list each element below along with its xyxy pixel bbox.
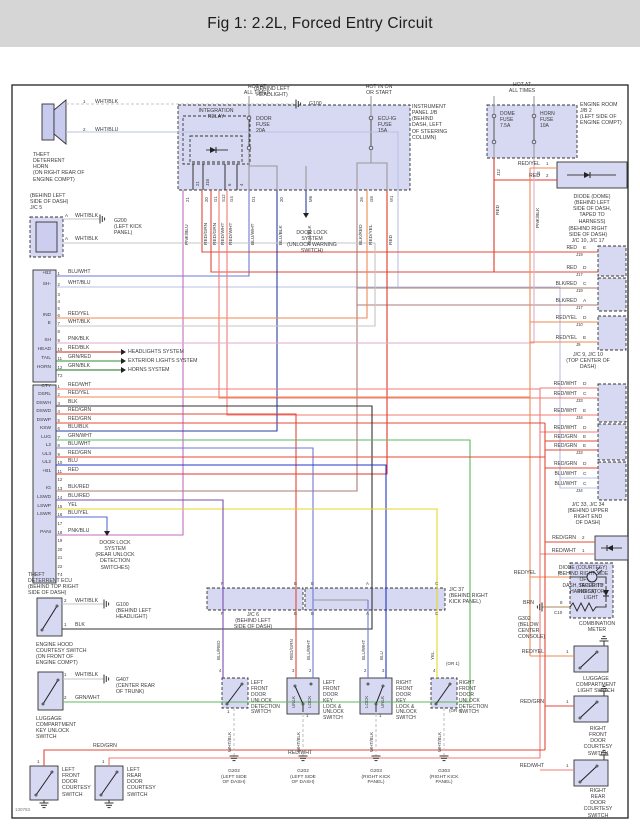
label-ecu1-num-11: 12	[58, 365, 63, 370]
label-ecu1-num-9: 10	[58, 347, 63, 352]
label-jc3334-wire-1: RED/WHT	[554, 392, 577, 398]
label-ecu2-name-8: UL3	[42, 452, 51, 458]
label-ecu2-num-2: 3	[58, 401, 60, 406]
label-horn_sys: HORNS SYSTEM	[128, 367, 170, 373]
label-ecu1-num-2: 3	[58, 292, 60, 297]
label-dc_p1: 2	[582, 535, 585, 540]
label-mid-pin-4: 3	[382, 668, 384, 673]
label-ext_sys: EXTERIOR LIGHTS SYSTEM	[128, 358, 197, 364]
label-jc3334-pin-8: C	[583, 482, 586, 488]
label-mid-pin-1: 3	[292, 668, 294, 673]
label-jc1017-tag-1: J17	[576, 273, 583, 278]
label-jc-bot-10: B	[311, 611, 314, 616]
label-relay-pin-2: 6	[227, 184, 232, 186]
label-lugk_p2: 2	[64, 695, 67, 700]
label-mid-pin-2: 2	[309, 668, 311, 673]
label-ecu2-num-9: 10	[58, 460, 63, 465]
label-jb-exit-pin-7: M6	[308, 196, 313, 202]
label-ecu2-num-17: 18	[58, 530, 63, 535]
label-jb-exit-wire-8: BLK/RED	[359, 224, 365, 245]
label-brs_label: (BEHIND RIGHT SIDE OF DASH) J/C 10, J/C …	[569, 226, 608, 244]
label-hl_sys: HEADLIGHTS SYSTEM	[128, 349, 184, 355]
label-ecu1-wire-6: WHT/BLK	[68, 320, 90, 326]
label-lls_w: RED/YEL	[522, 649, 544, 655]
label-jc1017-wire-2: BLK/RED	[556, 282, 577, 288]
label-ecu2-name-2: DSWH	[36, 401, 51, 407]
label-jc3334-pin-0: D	[583, 382, 586, 388]
label-ecu2-wire-15: BLU/YEL	[68, 511, 89, 517]
label-ecu1-wire-5: RED/YEL	[68, 312, 89, 318]
label-ecu2-name-10: +B1	[42, 469, 51, 475]
label-jc3334-tag-8: J34	[576, 489, 583, 494]
label-g303_lbl: G303 (RIGHT KICK PANEL)	[430, 769, 459, 786]
label-lock1: LOCK	[307, 696, 312, 708]
label-jc-top-01: B	[294, 581, 297, 586]
label-comb_meter: COMBINATION METER	[579, 621, 615, 633]
label-jb-exit-pin-2: G1	[213, 196, 218, 202]
label-jb-exit-pin-0: 21	[185, 197, 190, 202]
label-jb-exit-wire-0: PNK/BLU	[185, 224, 191, 245]
label-g202b_lbl: G202 (LEFT SIDE OF DASH)	[290, 769, 316, 786]
label-jc5_w1: WHT/BLK	[75, 213, 98, 219]
label-sl_w: RED/YEL	[514, 570, 536, 576]
label-ecu1-wire-0: BLU/WHT	[68, 270, 91, 276]
label-dome_fuse: DOME FUSE 7.5A	[500, 112, 515, 130]
label-jc3334_lbl: J/C 33, J/C 34 (BEHIND UPPER RIGHT END O…	[568, 502, 609, 527]
label-door_fuse: DOOR FUSE 20A	[256, 116, 272, 134]
label-jc3334-wire-0: RED/WHT	[554, 382, 577, 388]
label-lugk_lbl: LUGGAGE COMPARTMENT KEY UNLOCK SWITCH	[36, 716, 76, 741]
label-er-exit-wire-0: RED	[496, 205, 502, 215]
label-jc-bot-12: C	[435, 611, 438, 616]
label-dd_p2: 2	[546, 173, 549, 178]
label-key2_p: 1	[379, 713, 382, 718]
label-ecu2-num-12: 13	[58, 486, 63, 491]
label-ecu1-num-7: 8	[58, 329, 60, 334]
label-dd_p1: 1	[546, 161, 549, 166]
label-ecu1-num-0: 1	[58, 271, 60, 276]
label-jc-bot-11: A	[366, 611, 369, 616]
label-mid-wire-4: BLU	[379, 651, 384, 660]
label-ecu2-wire-1: RED/YEL	[68, 391, 89, 397]
label-lugk_w2: GRN/WHT	[75, 695, 100, 701]
label-brn_w: BRN	[523, 600, 534, 606]
label-or1: (OR 1)	[446, 661, 460, 666]
label-dd_w1: RED/YEL	[518, 161, 540, 167]
label-relay-pin-0: 21	[195, 181, 200, 186]
label-w_horn2: WHT/BLU	[95, 127, 118, 133]
label-hood_p1: 1	[64, 622, 67, 627]
label-jc3334-wire-6: RED/GRN	[554, 462, 577, 468]
label-ecu2-name-7: L2	[46, 443, 51, 449]
label-jc1017-wire-1: RED	[566, 266, 577, 272]
label-hot_door: HOT AT ALL TIMES	[244, 84, 270, 96]
label-jc5_lbl: (BEHIND LEFT SIDE OF DASH) J/C 5	[30, 193, 68, 211]
label-ecu2-num-1: 2	[58, 392, 60, 397]
label-ecu2-name-9: UL2	[42, 460, 51, 466]
label-mid-wire-0: BLU/RED	[216, 640, 221, 660]
label-key1_p: 1	[306, 713, 309, 718]
label-jc3334-wire-5: RED/GRN	[554, 444, 577, 450]
label-jc-bot-00: F	[221, 611, 224, 616]
label-ecu2-name-0: CTY	[41, 384, 51, 390]
label-ecu1-num-4: 5	[58, 306, 60, 311]
label-jc3334-wire-7: BLU/WHT	[555, 472, 578, 478]
label-g200_lbl: G200 (LEFT KICK PANEL)	[114, 218, 142, 236]
label-jc910-pin-0: D	[583, 316, 586, 322]
label-ecu1-num-3: 4	[58, 299, 60, 304]
label-jc5_p2: A	[65, 236, 68, 241]
label-jc1017-pin-2: C	[583, 282, 586, 288]
label-ecu2-num-22: T4	[58, 572, 63, 577]
label-jc910-tag-0: J10	[576, 323, 583, 328]
label-ecu2-wire-6: GRN/WHT	[68, 434, 92, 440]
label-rrc_lbl: RIGHT REAR DOOR COURTESY SWITCH	[584, 788, 613, 819]
label-ecu2-num-16: 17	[58, 521, 63, 526]
label-jb-exit-pin-9: G8	[369, 196, 374, 202]
label-ecu2-num-19: 20	[58, 547, 63, 552]
label-g100b_lbl: G100 (BEHIND LEFT HEADLIGHT)	[116, 602, 151, 620]
label-jb-exit-wire-7: BLU/BLK	[308, 225, 314, 245]
label-ecu2-name-4: DSWP	[37, 418, 51, 424]
label-ecu2-wire-14: YEL	[68, 503, 77, 509]
label-ecu2-wire-10: RED	[68, 468, 79, 474]
label-ip_jb: INSTRUMENT PANEL J/B (BEHIND DASH, LEFT …	[412, 104, 447, 141]
label-ecu2-name-3: DSWD	[36, 409, 51, 415]
label-jc3334-pin-3: D	[583, 426, 586, 432]
label-er-exit-pin-0: J12	[496, 169, 501, 176]
label-jb-exit-wire-9: RED/YEL	[369, 224, 375, 245]
label-horn_p1: 1	[83, 99, 86, 104]
label-sl_p: 9	[558, 570, 561, 575]
label-g203_lbl: G203 (RIGHT KICK PANEL)	[362, 769, 391, 786]
label-ecu1-wire-1: WHT/BLU	[68, 281, 91, 287]
label-ecu1-name-8: SH	[44, 338, 51, 344]
label-ecuig_fuse: ECU-IG FUSE 15A	[378, 116, 396, 134]
label-jc3334-tag-1: J33	[576, 399, 583, 404]
label-relay-pin-1: J18	[205, 179, 210, 186]
label-jc910-wire-0: RED/YEL	[556, 316, 577, 322]
label-jc-top-10: B	[311, 581, 314, 586]
label-jc3334-pin-7: C	[583, 472, 586, 478]
label-ecu1-num-8: 9	[58, 338, 60, 343]
label-horn_p2: 2	[83, 127, 86, 132]
label-key1_lbl: LEFT FRONT DOOR KEY LOCK & UNLOCK SWITCH	[323, 681, 344, 722]
label-jc910-wire-1: RED/YEL	[556, 336, 577, 342]
label-jc1017-tag-3: J17	[576, 306, 583, 311]
label-mid-wire-1: RED/GRN	[289, 639, 294, 660]
label-ecu2-num-10: 11	[58, 469, 62, 474]
label-jc1017-tag-2: J19	[576, 289, 583, 294]
label-jc-bot-01: B	[294, 611, 297, 616]
label-ecu2-name-13: LSWD	[37, 495, 51, 501]
label-jc1017-pin-3: A	[583, 299, 586, 305]
label-jc3334-pin-6: D	[583, 462, 586, 468]
label-ecu1-name-10: TAIL	[41, 356, 51, 362]
label-rg_b: RED/GRN	[93, 743, 117, 749]
label-mid-pin-5: 4	[433, 668, 435, 673]
label-ecu2-num-15: 16	[58, 512, 63, 517]
label-det1_p: 1	[227, 709, 230, 714]
label-ecu1-wire-9: RED/BLK	[68, 346, 89, 352]
label-jc3334-tag-5: J33	[576, 451, 583, 456]
label-jb-exit-wire-2: RED/GRN	[213, 223, 219, 245]
label-ecu2-num-14: 15	[58, 504, 63, 509]
label-jc3334-wire-8: BLU/WHT	[555, 482, 578, 488]
label-jc1017-tag-0: J19	[576, 253, 583, 258]
label-rfc_p: 1	[566, 699, 569, 704]
label-w_horn1: WHT/BLK	[95, 99, 118, 105]
label-jc910-tag-1: J9	[576, 343, 580, 348]
label-lls_lbl: LUGGAGE COMPARTMENT LIGHT SWITCH	[576, 676, 616, 694]
label-ecu2-num-0: 1	[58, 384, 60, 389]
label-det1_lbl: LEFT FRONT DOOR UNLOCK DETECTION SWITCH	[251, 681, 280, 716]
label-ecu2-wire-9: BLU	[68, 459, 78, 465]
label-ecu2-name-15: LSWR	[37, 512, 51, 518]
label-ecu2-wire-7: BLU/WHT	[68, 442, 91, 448]
label-jb-exit-wire-6: BLU/BLK	[279, 225, 285, 245]
label-ecu2-num-5: 6	[58, 426, 60, 431]
label-rfc_w: RED/GRN	[520, 699, 544, 705]
label-jc3334-pin-5: E	[583, 444, 586, 450]
label-dc_w2: RED/WHT	[552, 548, 576, 554]
label-hot_dome: HOT AT ALL TIMES	[509, 82, 535, 94]
label-integ_relay: INTEGRATION RELAY	[198, 108, 233, 120]
label-ecu2-num-21: 22	[58, 564, 63, 569]
label-t_horn: THEFT DETERRENT HORN (ON RIGHT REAR OF E…	[33, 152, 85, 183]
label-ecu1-name-6: E	[48, 321, 51, 327]
label-hood_w1: BLK	[75, 622, 85, 628]
label-ecu2-num-6: 7	[58, 435, 60, 440]
label-g302_lbl: G302 (BELOW CENTER CONSOLE)	[518, 616, 545, 641]
label-unlk2: UNLK	[380, 696, 385, 708]
label-er-exit-wire-1: PNK/BLK	[536, 208, 542, 228]
label-jb-exit-pin-5: D1	[251, 197, 256, 203]
label-ecu1-name-5: IND	[43, 313, 51, 319]
label-key2_lbl: RIGHT FRONT DOOR KEY LOCK & UNLOCK SWITC…	[396, 681, 417, 722]
label-jc1017-pin-0: E	[583, 246, 586, 252]
label-unlk1: UNLK	[291, 696, 296, 708]
label-ecu2-num-18: 19	[58, 538, 63, 543]
label-horn_fuse: HORN FUSE 10A	[540, 112, 555, 130]
label-ecu2-name-1: DSRL	[38, 392, 51, 398]
label-sec_light: SECURITY INDICATOR LIGHT	[577, 584, 604, 602]
label-ecu2-name-14: LSWP	[37, 504, 51, 510]
label-lfc_lbl: LEFT FRONT DOOR COURTESY SWITCH	[62, 767, 91, 798]
label-jb-exit-wire-10: RED	[389, 235, 395, 245]
label-ecu2-num-11: 12	[58, 477, 63, 482]
label-ecu2-num-8: 9	[58, 452, 60, 457]
label-whtblk-1: WHT/BLK	[296, 732, 301, 752]
label-jc5_p1: A	[65, 213, 68, 218]
label-ecu2-wire-5: BLU/BLK	[68, 425, 89, 431]
label-whtblk-0: WHT/BLK	[227, 732, 232, 752]
label-ecu1-num-1: 2	[58, 282, 60, 287]
label-jc-top-00: F	[221, 581, 224, 586]
label-det2_lbl: RIGHT FRONT DOOR UNLOCK DETECTION SWITCH	[459, 681, 488, 716]
label-ecu2-wire-13: BLU/RED	[68, 494, 90, 500]
label-c10: C10	[554, 610, 562, 615]
label-ecu1-num-10: 11	[58, 356, 62, 361]
label-jb-exit-pin-1: 20	[204, 197, 209, 202]
wiring-diagram-page: Fig 1: 2.2L, Forced Entry Circuit THEFT …	[0, 0, 640, 835]
label-jc1017-wire-3: BLK/RED	[556, 299, 577, 305]
label-ecu2-num-4: 5	[58, 418, 60, 423]
label-jc-top-12: C	[435, 581, 438, 586]
label-dc_w1: RED/GRN	[552, 535, 576, 541]
label-rrc_w: RED/WHT	[520, 763, 544, 769]
label-ecu1-name-0: +B2	[42, 271, 51, 277]
label-jc6_lbl: J/C 6 (BEHIND LEFT SIDE OF DASH)	[234, 612, 272, 630]
label-g100a: G100	[309, 101, 322, 107]
label-er_jb: ENGINE ROOM J/B 2 (LEFT SIDE OF ENGINE C…	[580, 102, 622, 127]
label-jb-exit-pin-3: S12	[221, 194, 226, 202]
label-ecu2-num-20: 21	[58, 555, 63, 560]
label-jb-exit-pin-4: G4	[229, 196, 234, 202]
label-jb-exit-wire-5: BLU/WHT	[251, 223, 257, 245]
diagram-code: 130793	[15, 807, 30, 812]
label-ecu1-num-5: 6	[58, 313, 60, 318]
label-jb-exit-pin-6: 20	[279, 197, 284, 202]
label-ecu1-num-6: 7	[58, 321, 60, 326]
label-ecu2-wire-2: BLK	[68, 400, 77, 406]
label-g407_lbl: G407 (CENTER REAR OF TRUNK)	[116, 677, 155, 695]
label-hood_w2: WHT/BLK	[75, 598, 98, 604]
label-lock2: LOCK	[364, 696, 369, 708]
label-jc3334-tag-2: J34	[576, 416, 583, 421]
label-ecu1-num-12: T2	[58, 373, 63, 378]
label-dc_p2: 1	[582, 548, 585, 553]
label-hot_ecuig: HOT IN ON OR START	[366, 84, 393, 96]
label-ecu2-wire-4: RED/GRN	[68, 417, 91, 423]
label-dls2: DOOR LOCK SYSTEM (REAR UNLOCK DETECTION …	[95, 540, 134, 571]
label-lrc_lbl: LEFT REAR DOOR COURTESY SWITCH	[127, 767, 156, 798]
label-ecu2-num-13: 14	[58, 495, 63, 500]
label-jc3334-pin-1: C	[583, 392, 586, 398]
label-rfc_lbl: RIGHT FRONT DOOR COURTESY SWITCH	[584, 726, 613, 757]
label-ecu1-name-1: SH-	[43, 282, 51, 288]
label-ecu2-wire-12: BLK/RED	[68, 485, 89, 491]
label-jc3334-wire-2: RED/WHT	[554, 409, 577, 415]
label-ecu1-wire-10: GRN/RED	[68, 355, 91, 361]
label-mid-pin-3: 2	[364, 668, 366, 673]
label-jb-exit-wire-1: RED/GRN	[204, 223, 210, 245]
label-jc-top-11: A	[366, 581, 369, 586]
label-relay-pin-3: 4	[239, 184, 244, 186]
label-ecu2-wire-0: RED/WHT	[68, 383, 91, 389]
label-whtblk-2: WHT/BLK	[369, 732, 374, 752]
label-ecu2-name-6: LUG	[41, 435, 51, 441]
label-lrc_p: 1	[102, 759, 105, 764]
label-jb-exit-pin-8: 26	[359, 197, 364, 202]
label-ecu2-name-12: IG	[46, 486, 51, 492]
label-ecu_lbl: THEFT DETERRENT ECU (BEHIND TOP RIGHT SI…	[28, 572, 79, 597]
label-ecu1-name-9: HEAD	[38, 347, 51, 353]
label-ecu2-num-7: 8	[58, 443, 60, 448]
label-ecu2-wire-17: PNK/BLU	[68, 529, 89, 535]
label-ecu1-wire-11: GRN/BLK	[68, 364, 90, 370]
label-jb-exit-wire-3: RED/WHT	[221, 223, 227, 245]
label-jc3334-pin-2: E	[583, 409, 586, 415]
label-ecu2-name-5: KSW	[40, 426, 51, 432]
label-jc910_lbl: J/C 9, J/C 10 (TOP CENTER OF DASH)	[562, 352, 614, 370]
label-ecu2-name-17: PANI	[40, 530, 51, 536]
label-lugk_p1: 1	[64, 672, 67, 677]
label-jb-exit-pin-10: W1	[389, 196, 394, 202]
label-jc1017-pin-1: D	[583, 266, 586, 272]
label-ecu2-num-3: 4	[58, 409, 60, 414]
label-mid-wire-5: YEL	[430, 651, 435, 660]
label-jc1017-wire-0: RED	[566, 246, 577, 252]
label-lfc_p: 1	[37, 759, 40, 764]
label-whtblk-3: WHT/BLK	[437, 732, 442, 752]
label-hood_lbl: ENGINE HOOD COURTESY SWITCH (ON FRONT OF…	[36, 642, 87, 667]
label-jb-exit-wire-4: RED/WHT	[229, 223, 235, 245]
label-mid-wire-2: BLU/WHT	[306, 640, 311, 660]
label-rrc_p: 1	[566, 763, 569, 768]
label-jc3334-wire-4: RED/GRN	[554, 435, 577, 441]
label-jc910-pin-1: E	[583, 336, 586, 342]
label-diode_dome_lbl: DIODE (DOME) (BEHIND LEFT SIDE OF DASH, …	[573, 194, 611, 225]
label-jc5_w2: WHT/BLK	[75, 236, 98, 242]
label-brn_p: 8	[560, 600, 563, 605]
label-jc3334-pin-4: E	[583, 435, 586, 441]
label-g202a_lbl: G202 (LEFT SIDE OF DASH)	[221, 769, 247, 786]
label-ecu1-wire-8: PNK/BLK	[68, 337, 89, 343]
label-ecu1-name-11: HORN	[37, 365, 51, 371]
label-jc37_lbl: J/C 37 (BEHIND RIGHT KICK PANEL)	[449, 587, 488, 605]
label-jc3334-wire-3: RED/WHT	[554, 426, 577, 432]
label-hood_p2: 2	[64, 598, 67, 603]
label-ecu2-wire-3: RED/GRN	[68, 408, 91, 414]
label-mid-wire-3: BLU/WHT	[361, 640, 366, 660]
label-lugk_w1: WHT/BLK	[75, 672, 98, 678]
label-mid-pin-0: 4	[219, 668, 221, 673]
label-er-exit-pin-1: 12	[536, 171, 541, 176]
label-ecu2-wire-8: RED/GRN	[68, 451, 91, 457]
label-lls_p: 1	[566, 649, 569, 654]
